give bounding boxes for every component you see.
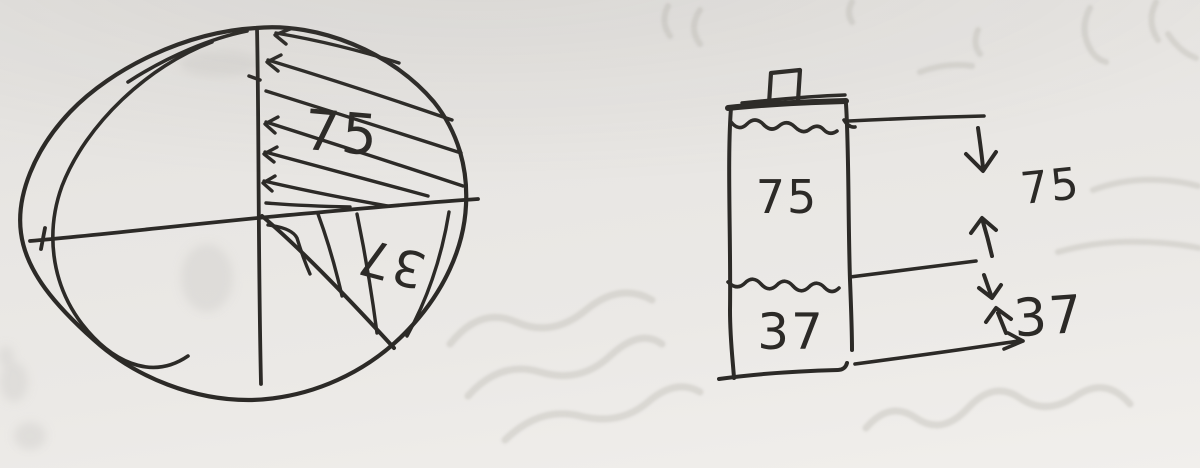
dim-line-bottom: [855, 333, 1023, 364]
pie-chart: 75 37: [20, 27, 478, 400]
ghost-writing-mark: [1084, 8, 1106, 62]
ghost-writing-mark: [849, 2, 980, 54]
bar-top-segment-label: 75: [756, 170, 819, 224]
bar-right-side: [846, 104, 852, 350]
bar-diagram: 75 37 75 37: [719, 70, 1086, 379]
pie-circle-overdraw: [53, 42, 212, 367]
bar-wavy-line-top: [731, 120, 855, 133]
dim-line-middle: [850, 261, 976, 277]
dim-bottom-label: 37: [1012, 285, 1086, 350]
ghost-writing-mark: [505, 387, 700, 440]
ghost-writing-mark: [468, 338, 662, 396]
bar-bottom-segment-label: 37: [757, 303, 825, 361]
bar-bottom-line: [719, 363, 847, 379]
paper-smudges: [0, 51, 260, 450]
ghost-writing-mark: [920, 65, 972, 72]
bar-wavy-line-middle: [728, 279, 839, 291]
hatch-line: [266, 203, 350, 207]
down-arrow-icon: [979, 275, 1001, 298]
up-arrow-icon: [986, 308, 1011, 333]
smudge-mark: [180, 51, 260, 77]
paper-sheet: 75 37 75 37 75 37: [0, 0, 1200, 468]
hatch-line: [268, 225, 310, 274]
down-arrow-icon: [966, 128, 996, 171]
bleed-through-marks: [450, 2, 1199, 440]
smudge-mark: [14, 422, 46, 450]
pie-quarter-label: 75: [301, 98, 382, 169]
smudge-mark: [0, 362, 28, 402]
ghost-writing-mark: [1093, 180, 1198, 190]
dim-line-top: [849, 116, 984, 121]
ghost-writing-mark: [664, 6, 670, 36]
ghost-writing-mark: [1058, 242, 1199, 252]
smudge-mark: [181, 244, 233, 312]
hatch-line: [275, 29, 399, 63]
ghost-writing-mark: [1151, 2, 1196, 58]
bar-left-side: [729, 108, 734, 378]
pie-wedge-label: 37: [352, 226, 432, 300]
ghost-writing-mark: [694, 10, 700, 44]
pie-circle-outline: [20, 27, 466, 400]
ghost-writing-mark: [450, 293, 652, 344]
up-arrow-icon: [971, 218, 996, 256]
sketch-canvas: 75 37 75 37 75 37: [0, 0, 1200, 468]
hatch-line: [318, 214, 342, 296]
ghost-writing-mark: [866, 388, 1130, 428]
dim-top-label: 75: [1018, 158, 1083, 215]
